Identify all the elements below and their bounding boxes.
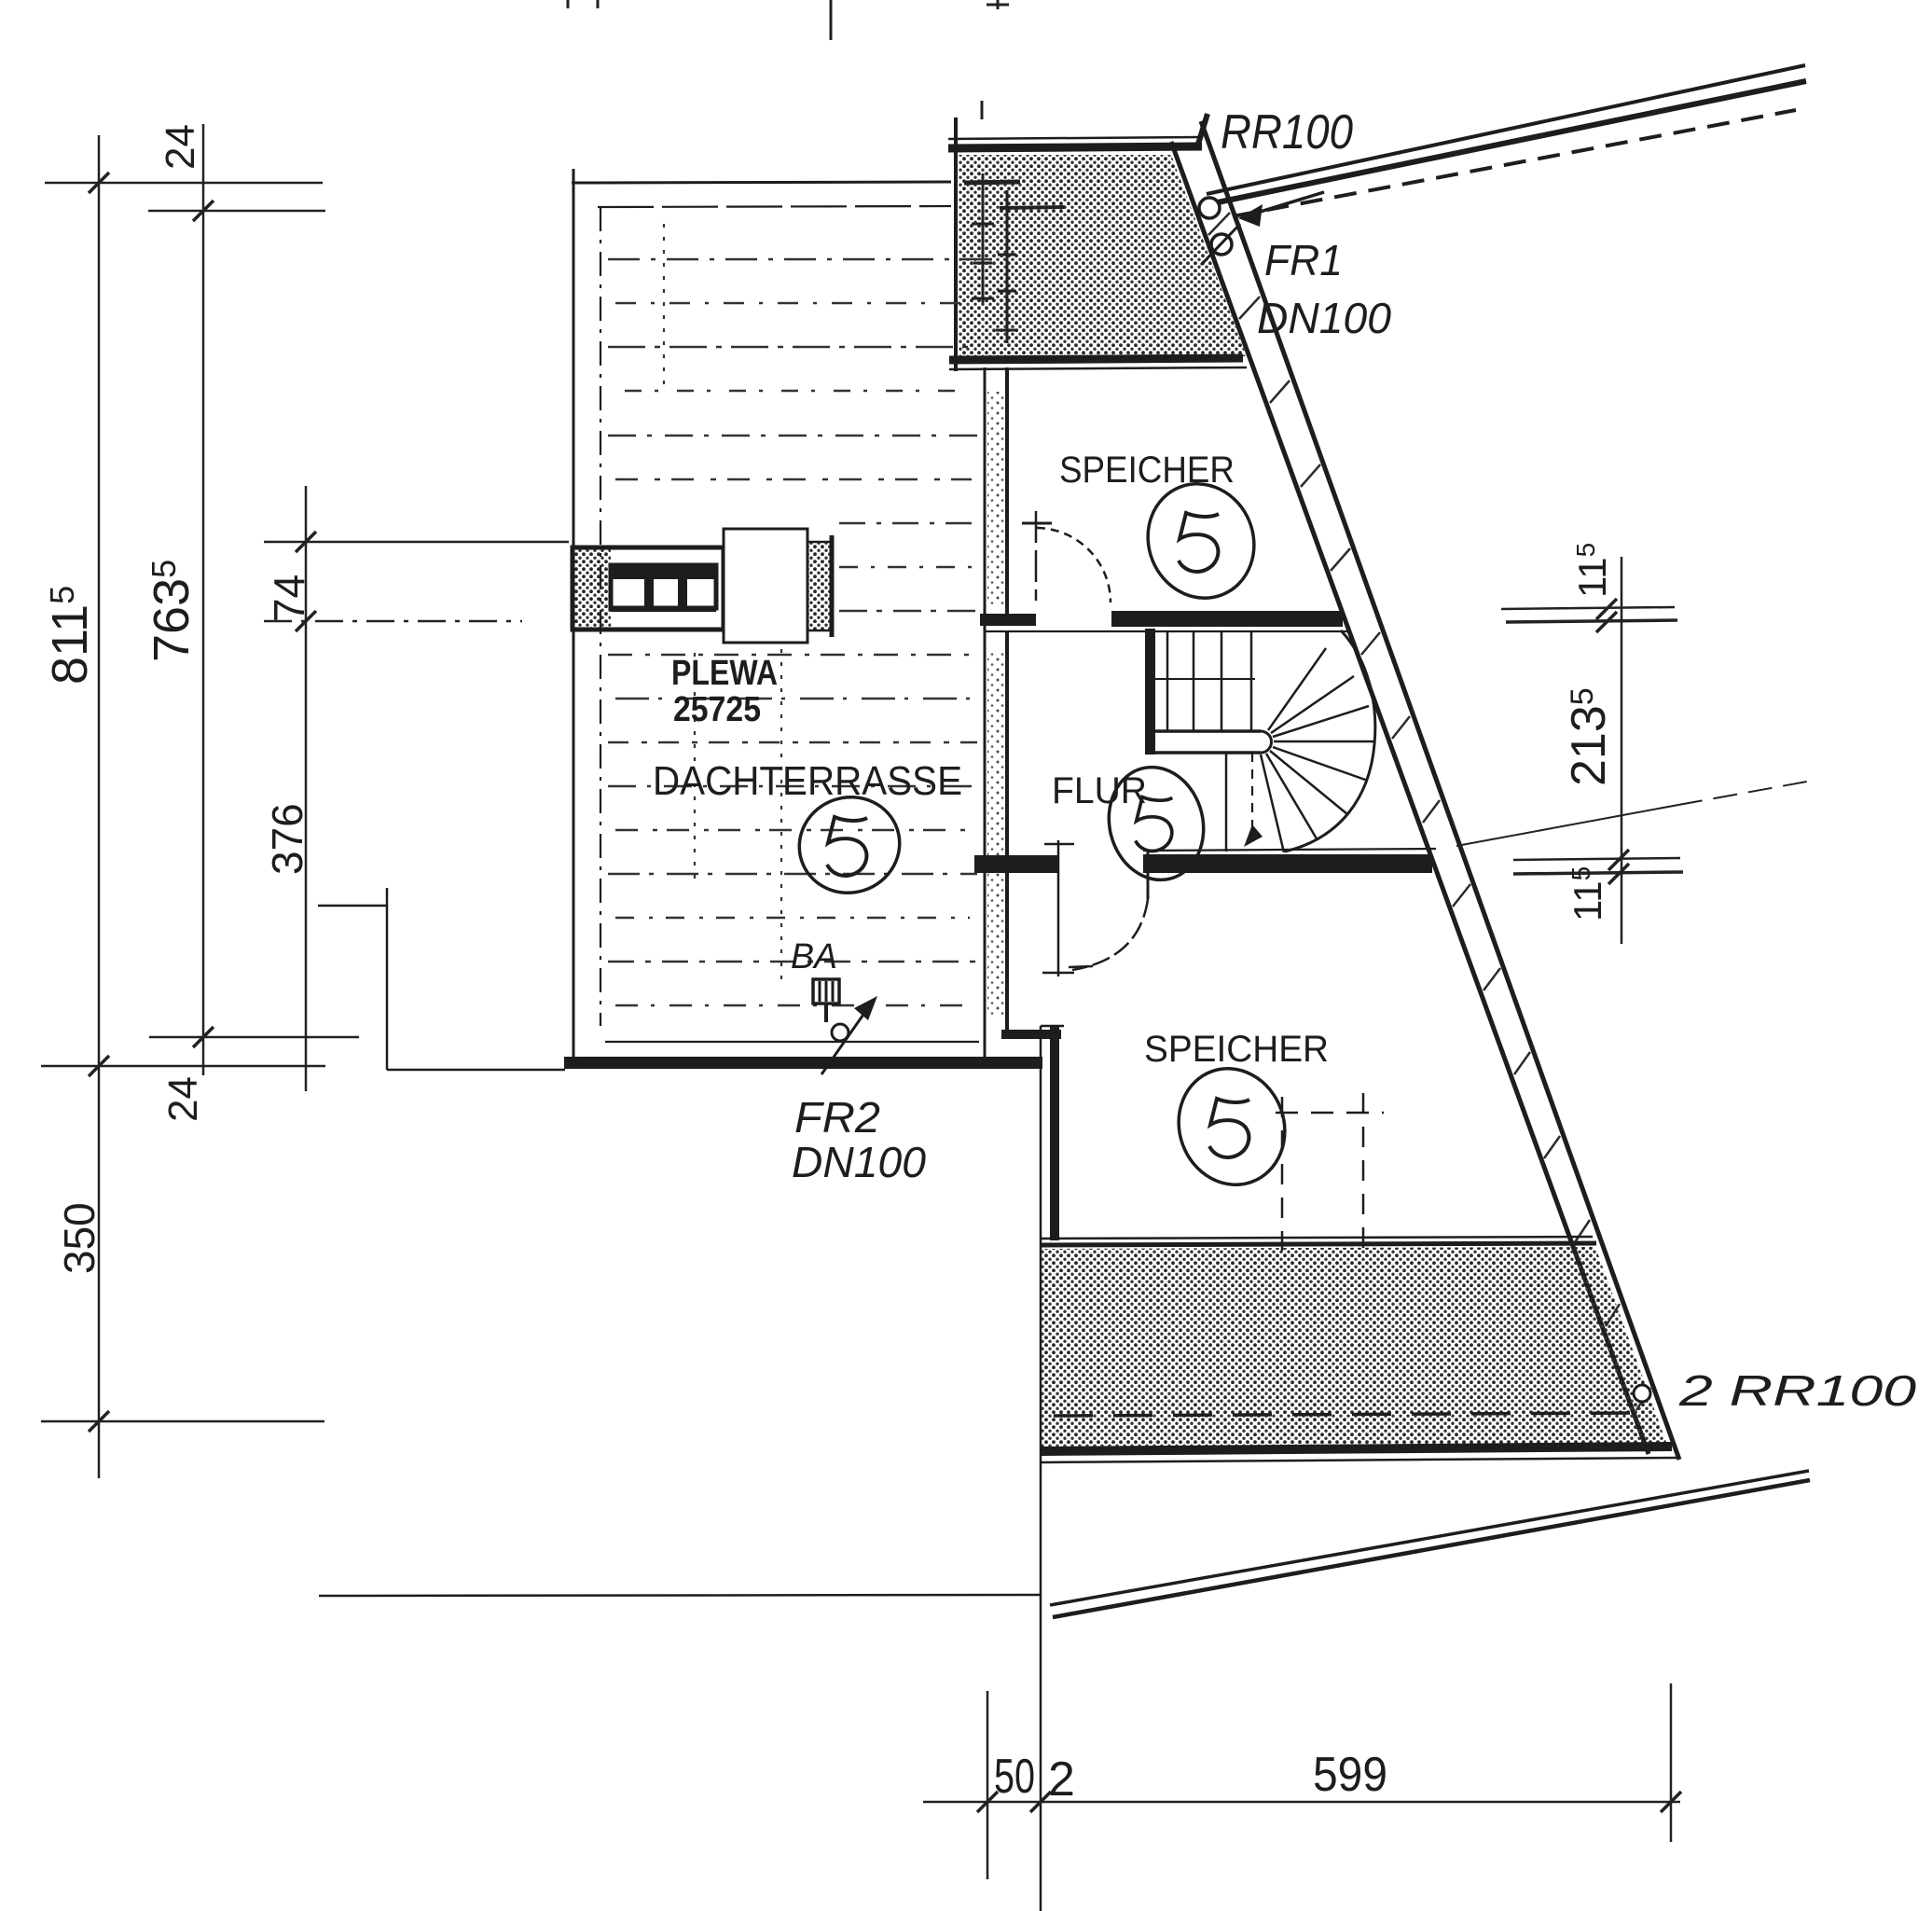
svg-text:24: 24 [158, 124, 203, 170]
svg-text:FR2: FR2 [794, 1093, 880, 1142]
svg-text:RR100: RR100 [1221, 105, 1353, 159]
svg-text:2 RR100: 2 RR100 [1678, 1366, 1917, 1415]
svg-text:DN100: DN100 [792, 1138, 926, 1186]
svg-text:24: 24 [160, 1076, 206, 1122]
svg-text:50: 50 [994, 1750, 1035, 1804]
svg-text:FLUR: FLUR [1052, 770, 1147, 811]
svg-text:FR1: FR1 [1264, 236, 1343, 284]
svg-text:350: 350 [55, 1202, 103, 1274]
svg-text:SPEICHER: SPEICHER [1144, 1029, 1329, 1070]
svg-text:599: 599 [1313, 1748, 1387, 1802]
svg-text:376: 376 [263, 803, 311, 875]
svg-text:DACHTERRASSE: DACHTERRASSE [653, 758, 962, 804]
svg-text:BA: BA [791, 937, 837, 976]
svg-text:25725: 25725 [673, 690, 761, 729]
svg-text:2: 2 [1048, 1752, 1075, 1807]
svg-text:PLEWA: PLEWA [671, 654, 778, 693]
svg-text:74: 74 [265, 575, 313, 622]
